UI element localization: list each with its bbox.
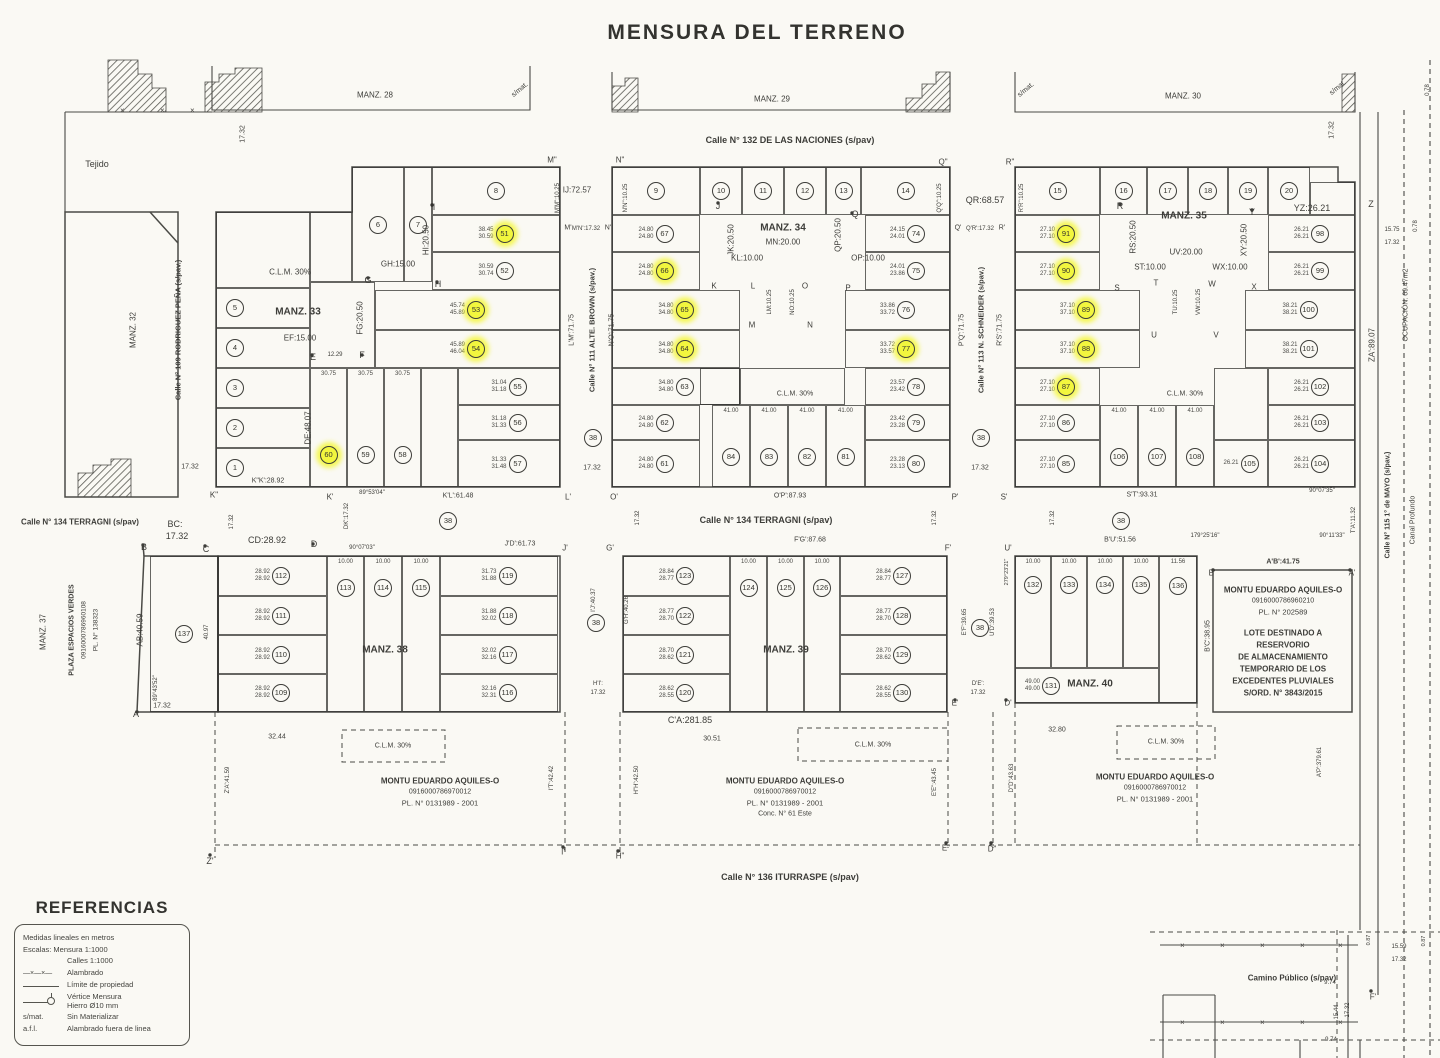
lot-number: 109	[272, 684, 290, 702]
lot-number: 12	[796, 182, 814, 200]
map-label: F'	[945, 544, 951, 553]
lot-number: 3	[226, 379, 244, 397]
lot-number-highlighted: 64	[676, 340, 694, 358]
lot-number: 125	[777, 579, 795, 597]
map-label: J	[716, 201, 721, 211]
lot-number: 119	[499, 567, 517, 585]
map-label: N'O':71.75	[609, 314, 616, 347]
map-label: P'Q':71.75	[959, 314, 966, 346]
map-label: 0916000786960108	[81, 601, 88, 659]
plan-linework: ××× ×× ××× ×× ×××	[0, 0, 1440, 1058]
svg-text:×: ×	[1220, 941, 1225, 950]
map-label: S	[1114, 284, 1119, 293]
map-label: D"	[988, 845, 997, 854]
lot-cell-132: 10.00132	[1015, 556, 1051, 668]
map-label: 32.44	[268, 734, 286, 741]
legend-text: Calles 1:1000	[67, 956, 113, 965]
map-label: WX:10.00	[1212, 263, 1247, 272]
map-label: 17.32	[153, 703, 171, 710]
lot-cell-86: 27.10 27.1086	[1015, 405, 1100, 440]
lot-dimensions: 10.00	[731, 559, 766, 566]
lot-cell-78: 23.57 23.4278	[865, 368, 950, 405]
lot-cell-99: 26.21 26.2199	[1268, 252, 1355, 290]
lot-number-highlighted: 54	[467, 340, 485, 358]
lot-number: 63	[676, 378, 694, 396]
map-label: 17.32	[1050, 510, 1056, 525]
map-label: MANZ. 40	[1067, 679, 1113, 690]
lot-dimensions: 26.21 26.21	[1294, 457, 1309, 471]
map-label: R	[1117, 201, 1124, 211]
right-edge-lines	[1360, 60, 1430, 1058]
map-label: RESERVORIO	[1256, 641, 1309, 650]
lot-number: 6	[369, 216, 387, 234]
lot-dimensions: 32.16 32.31	[481, 686, 496, 700]
lot-number: 62	[656, 414, 674, 432]
lot-number-highlighted: 51	[496, 225, 514, 243]
lot-cell-88: 37.10 37.1088	[1015, 330, 1140, 368]
lot-number: 61	[656, 455, 674, 473]
map-label: 0916000786970012	[1124, 785, 1186, 792]
lot-number-highlighted: 90	[1057, 262, 1075, 280]
map-label: S'T':93.31	[1126, 492, 1157, 499]
map-label: PL. N° 138323	[93, 609, 100, 651]
lot-cell-65: 34.80 34.8065	[612, 290, 740, 330]
lot-dimensions: 41.00	[1101, 408, 1137, 415]
lot-cell-121: 28.70 28.62121	[623, 635, 730, 674]
lot-cell-10: 10	[700, 167, 742, 215]
lot-dimensions: 34.80 34.80	[658, 303, 673, 317]
lot-dimensions: 24.80 24.80	[638, 457, 653, 471]
map-label: N'N":10.25	[623, 184, 629, 213]
lot-number: 108	[1186, 448, 1204, 466]
map-label: TEMPORARIO DE LOS	[1240, 665, 1326, 674]
lot-cell	[700, 368, 740, 405]
lot-number: 98	[1311, 225, 1329, 243]
map-label: NO:10.25	[790, 289, 796, 315]
lot-number: 104	[1311, 455, 1329, 473]
lot-dimensions: 38.45 30.59	[478, 227, 493, 241]
lot-cell-12: 12	[784, 167, 826, 215]
map-label: Calle N° 132 DE LAS NACIONES (s/pav)	[706, 135, 875, 145]
lot-number: 129	[893, 646, 911, 664]
map-label: C.L.M. 30%	[777, 391, 814, 398]
map-label: K'	[327, 493, 334, 502]
lot-cell-17: 17	[1147, 167, 1188, 215]
lot-number: 112	[272, 567, 290, 585]
lot-cell-126: 10.00126	[804, 556, 840, 712]
map-label: N	[807, 321, 813, 330]
lot-dimensions: 30.59 30.74	[478, 264, 493, 278]
map-label: 12.29	[327, 352, 342, 358]
lot-number: 20	[1280, 182, 1298, 200]
map-label: DK':17.32	[344, 503, 350, 529]
lot-dimensions: 41.00	[789, 408, 825, 415]
lot-number: 5	[226, 299, 244, 317]
lot-dimensions: 28.70 28.62	[876, 648, 891, 662]
lot-dimensions: 41.00	[751, 408, 787, 415]
map-label: PLAZA ESPACIOS VERDES	[69, 584, 76, 675]
map-label: ZA':89.07	[1368, 328, 1377, 362]
map-label: RS:20.50	[1129, 220, 1138, 253]
map-label: A'	[1349, 569, 1356, 578]
street-marker-circle: 38	[587, 614, 605, 632]
map-label: Calle N° 134 TERRAGNI (s/pav)	[21, 518, 139, 527]
map-label: Q	[851, 209, 858, 219]
lot-cell-135: 10.00135	[1123, 556, 1159, 668]
lot-cell-105: 26.21105	[1214, 440, 1268, 487]
lot-number: 114	[374, 579, 392, 597]
map-label: GH:15.00	[381, 260, 415, 269]
lot-dimensions: 10.00	[768, 559, 803, 566]
lot-number: 132	[1024, 576, 1042, 594]
lot-dimensions: 27.10 27.10	[1040, 457, 1055, 471]
legend: REFERENCIAS Medidas lineales en metrosEs…	[14, 898, 190, 1046]
map-label: FG:20.50	[356, 301, 365, 334]
lot-cell-51: 38.45 30.5951	[432, 215, 560, 252]
lot-dimensions: 10.00	[805, 559, 839, 566]
page-title: MENSURA DEL TERRENO	[607, 21, 906, 45]
lot-dimensions: 31.33 31.48	[491, 457, 506, 471]
map-label: N"	[616, 156, 625, 165]
lot-cell-77: 33.72 33.5777	[845, 330, 950, 368]
lot-cell-134: 10.00134	[1087, 556, 1123, 668]
legend-abbreviation: a.f.l.	[23, 1024, 67, 1033]
map-label: 17.32	[240, 125, 247, 143]
lot-number: 83	[760, 448, 778, 466]
map-label: F'G':87.68	[794, 537, 826, 544]
map-label: OCUPACIÓN: 69.47m2	[1403, 268, 1410, 341]
map-label: DE:48.07	[304, 411, 313, 444]
lot-cell-90: 27.10 27.1090	[1015, 252, 1100, 290]
lot-number: 136	[1169, 577, 1187, 595]
lot-dimensions: 28.62 28.55	[659, 686, 674, 700]
lot-number: 78	[907, 378, 925, 396]
map-label: EF:15.00	[284, 334, 316, 343]
lot-number: 10	[712, 182, 730, 200]
lot-number: 113	[337, 579, 355, 597]
lot-number: 107	[1148, 448, 1166, 466]
legend-text: Vértice Mensura Hierro Ø10 mm	[67, 992, 122, 1010]
legend-row: Escalas: Mensura 1:1000	[23, 945, 183, 954]
lot-dimensions: 49.00 49.00	[1025, 679, 1040, 693]
lot-cell-79: 23.42 23.2879	[865, 405, 950, 440]
lot-number: 55	[509, 378, 527, 396]
lot-dimensions: 26.21 26.21	[1294, 416, 1309, 430]
lot-dimensions: 23.28 23.13	[890, 457, 905, 471]
lot-cell-54: 45.89 46.0454	[375, 330, 560, 368]
map-label: Calle N° 113 N. SCHNEIDER (s/pav.)	[977, 267, 986, 393]
lot-number: 4	[226, 339, 244, 357]
map-label: 90°07'35"	[1309, 488, 1335, 494]
map-label: EXCEDENTES PLUVIALES	[1232, 677, 1333, 686]
map-label: IJ:72.57	[563, 186, 591, 195]
lot-number: 19	[1239, 182, 1257, 200]
lot-dimensions: 27.10 27.10	[1040, 380, 1055, 394]
map-label: 279°23'21"	[1004, 559, 1010, 586]
lot-cell	[310, 212, 352, 282]
map-label: N'	[605, 225, 611, 232]
lot-cell-102: 26.21 26.21102	[1268, 368, 1355, 405]
lot-cell-109: 28.92 28.92109	[218, 674, 327, 712]
lot-number-highlighted: 77	[897, 340, 915, 358]
map-label: D	[311, 539, 318, 549]
lot-cell-122: 28.77 28.70122	[623, 596, 730, 635]
lot-number: 101	[1300, 340, 1318, 358]
street-marker-circle: 38	[972, 429, 990, 447]
lot-number: 57	[509, 455, 527, 473]
map-label: Calle N° 136 ITURRASPE (s/pav)	[721, 872, 859, 882]
lot-dimensions: 32.02 32.16	[481, 648, 496, 662]
lot-number: 121	[676, 646, 694, 664]
lot-number: 52	[496, 262, 514, 280]
map-label: A	[133, 709, 139, 719]
map-label: 0916000786960210	[1252, 598, 1314, 605]
lot-number: 117	[499, 646, 517, 664]
lot-dimensions: 24.80 24.80	[638, 264, 653, 278]
map-label: R'S':71.75	[997, 314, 1004, 346]
legend-row: Vértice Mensura Hierro Ø10 mm	[23, 992, 183, 1010]
map-label: U'	[1004, 544, 1011, 553]
lot-dimensions: 41.00	[1177, 408, 1213, 415]
street-marker-circle: 38	[1112, 512, 1130, 530]
lot-cell	[216, 212, 310, 288]
lot-number: 130	[893, 684, 911, 702]
lot-dimensions: 28.92 28.92	[255, 609, 270, 623]
lot-dimensions: 37.10 37.10	[1060, 303, 1075, 317]
map-label: 40.97	[204, 624, 210, 639]
legend-row: Límite de propiedad	[23, 980, 183, 989]
lot-dimensions: 28.92 28.92	[255, 569, 270, 583]
map-label: C.L.M. 30%	[269, 268, 311, 277]
map-label: D'	[1004, 699, 1011, 708]
map-label: CD:28.92	[248, 535, 286, 545]
lot-dimensions: 37.10 37.10	[1060, 342, 1075, 356]
map-label: B	[141, 542, 147, 552]
map-label: MANZ. 33	[275, 307, 321, 318]
lot-dimensions: 27.10 27.10	[1040, 264, 1055, 278]
lot-cell-130: 28.62 28.55130	[840, 674, 947, 712]
map-label: G	[364, 275, 371, 285]
map-label: 17.32	[590, 690, 605, 696]
lot-cell	[1214, 368, 1268, 440]
lot-number-highlighted: 53	[467, 301, 485, 319]
map-label: HI:20.50	[422, 225, 431, 255]
map-label: 89°43'52"	[153, 675, 159, 701]
map-label: QR:68.57	[966, 195, 1005, 205]
lot-dimensions: 31.88 32.02	[481, 609, 496, 623]
lot-cell-104: 26.21 26.21104	[1268, 440, 1355, 487]
lot-number: 127	[893, 567, 911, 585]
map-label: MONTU EDUARDO AQUILES-O	[1096, 773, 1214, 782]
map-label: J'D':61.73	[505, 541, 536, 548]
lot-number: 81	[837, 448, 855, 466]
lot-dimensions: 28.77 28.70	[876, 609, 891, 623]
map-label: I	[433, 202, 436, 212]
legend-row: —×—×—Alambrado	[23, 968, 183, 978]
survey-sheet: MENSURA DEL TERRENO	[0, 0, 1440, 1058]
map-label: H	[435, 279, 442, 289]
lot-cell-128: 28.77 28.70128	[840, 596, 947, 635]
map-label: T	[1154, 279, 1159, 288]
lot-number: 76	[897, 301, 915, 319]
legend-row: Medidas lineales en metros	[23, 933, 183, 942]
lot-dimensions: 31.73 31.88	[481, 569, 496, 583]
lot-cell-59: 30.7559	[347, 368, 384, 487]
lot-dimensions: 41.00	[827, 408, 864, 415]
map-label: K'L':61.48	[443, 493, 474, 500]
map-label: YZ:26.21	[1294, 203, 1331, 213]
map-label: UV:20.00	[1169, 248, 1202, 257]
lot-number: 9	[647, 182, 665, 200]
map-label: C.L.M. 30%	[1148, 739, 1185, 746]
map-label: E	[310, 352, 316, 362]
lot-number: 99	[1311, 262, 1329, 280]
lot-cell-98: 26.21 26.2198	[1268, 215, 1355, 252]
lot-dimensions: 26.21 26.21	[1294, 380, 1309, 394]
lot-dimensions: 26.21 26.21	[1294, 264, 1309, 278]
lot-number: 105	[1241, 455, 1259, 473]
map-label: 17.32	[932, 510, 938, 525]
lot-cell-8: 8	[432, 167, 560, 215]
lot-cell-11: 11	[742, 167, 784, 215]
lot-number: 102	[1311, 378, 1329, 396]
lot-cell-108: 41.00108	[1176, 405, 1214, 487]
lot-cell-100: 38.21 38.21100	[1245, 290, 1355, 330]
lot-dimensions: 24.80 24.80	[638, 227, 653, 241]
lot-cell-111: 28.92 28.92111	[218, 596, 327, 635]
map-label: P	[845, 284, 850, 293]
map-label: O'P':87.93	[774, 493, 806, 500]
map-label: 17.32	[1329, 121, 1336, 139]
lot-cell-127: 28.84 28.77127	[840, 556, 947, 596]
map-label: 17.32	[181, 464, 199, 471]
lot-number: 74	[907, 225, 925, 243]
lot-number-highlighted: 60	[320, 446, 338, 464]
lot-number: 120	[676, 684, 694, 702]
lot-number: 82	[798, 448, 816, 466]
lot-cell-55: 31.04 31.1855	[458, 368, 560, 405]
street-marker-circle: 38	[584, 429, 602, 447]
lot-dimensions: 28.62 28.55	[876, 686, 891, 700]
lot-dimensions: 28.92 28.92	[255, 686, 270, 700]
lot-cell-136: 11.56136	[1159, 556, 1197, 703]
map-label: Camino Público (s/pav)	[1248, 974, 1336, 983]
map-label: M'	[564, 225, 571, 232]
lot-cell-110: 28.92 28.92110	[218, 635, 327, 674]
lot-cell-129: 28.70 28.62129	[840, 635, 947, 674]
lot-number: 16	[1115, 182, 1133, 200]
lot-dimensions: 28.77 28.70	[659, 609, 674, 623]
map-label: MANZ. 38	[362, 645, 408, 656]
street-marker-circle: 38	[439, 512, 457, 530]
lot-dimensions: 41.00	[1139, 408, 1175, 415]
lot-number: 135	[1132, 576, 1150, 594]
map-label: U'D':39.53	[990, 608, 996, 636]
lot-cell-58: 30.7558	[384, 368, 421, 487]
map-label: ST:10.00	[1134, 263, 1166, 272]
lot-number: 14	[897, 182, 915, 200]
map-label: Q'R':17.32	[966, 226, 994, 232]
map-label: 90°11'33"	[1319, 533, 1344, 539]
map-label: TU:10.25	[1173, 290, 1179, 315]
lot-cell-84: 41.0084	[712, 405, 750, 487]
lot-dimensions: 23.57 23.42	[890, 380, 905, 394]
map-label: E"	[942, 844, 950, 853]
map-label: H"	[616, 852, 625, 861]
map-label: H'I':	[593, 681, 603, 687]
lot-number: 75	[907, 262, 925, 280]
lot-cell-124: 10.00124	[730, 556, 767, 712]
lot-dimensions: 30.75	[348, 371, 383, 378]
map-label: MN:20.00	[766, 238, 801, 247]
map-label: J'	[562, 544, 568, 553]
map-label: A'P':379.61	[1317, 747, 1323, 777]
lot-number: 116	[499, 684, 517, 702]
map-label: L'M':71.75	[569, 314, 576, 346]
map-label: XY:20.50	[1240, 224, 1249, 256]
map-label: Z'	[206, 856, 213, 866]
lot-number: 85	[1057, 455, 1075, 473]
map-label: K"K':28.92	[252, 478, 285, 485]
map-label: 89°53'04"	[359, 490, 385, 496]
map-label: T'A':11.32	[1351, 507, 1357, 533]
lot-dimensions: 26.21 26.21	[1294, 227, 1309, 241]
map-label: M	[749, 321, 756, 330]
lot-number: 15	[1049, 182, 1067, 200]
svg-text:×: ×	[1300, 1018, 1305, 1027]
map-label: B'	[1209, 569, 1216, 578]
map-label: B'C':38.95	[1205, 620, 1212, 652]
lot-number: 103	[1311, 414, 1329, 432]
map-label: 17.32	[1391, 957, 1406, 963]
lot-dimensions: 38.21 38.21	[1282, 303, 1297, 317]
lot-number: 123	[676, 567, 694, 585]
legend-text: Sin Materializar	[67, 1012, 119, 1021]
map-label: MONTU EDUARDO AQUILES-O	[1224, 586, 1342, 595]
map-label: V	[1213, 331, 1218, 340]
map-label: MANZ. 37	[39, 614, 48, 650]
lot-dimensions: 45.74 45.89	[450, 303, 465, 317]
map-label: 90°07'03"	[349, 545, 375, 551]
map-label: R"	[1006, 158, 1015, 167]
map-label: MANZ. 28	[357, 91, 393, 100]
map-label: MONTU EDUARDO AQUILES-O	[381, 777, 499, 786]
lot-cell	[740, 368, 845, 405]
map-label: R'	[999, 225, 1005, 232]
legend-text: Medidas lineales en metros	[23, 933, 114, 942]
lot-number: 134	[1096, 576, 1114, 594]
lot-number: 18	[1199, 182, 1217, 200]
map-label: 0.87	[1421, 936, 1427, 947]
map-label: Z	[1368, 199, 1374, 209]
map-label: MANZ. 35	[1161, 211, 1207, 222]
lot-dimensions: 27.10 27.10	[1040, 227, 1055, 241]
map-label: LM:10.25	[767, 289, 773, 314]
map-label: Calle N° 111 ALTE. BROWN (s/pav.)	[588, 268, 597, 392]
lot-number-highlighted: 89	[1077, 301, 1095, 319]
map-label: Q"	[938, 158, 947, 167]
lot-number: 67	[656, 225, 674, 243]
lot-dimensions: 34.80 34.80	[658, 342, 673, 356]
lot-cell-112: 28.92 28.92112	[218, 556, 327, 596]
map-label: B'U':51.56	[1104, 537, 1136, 544]
svg-text:×: ×	[1338, 941, 1343, 950]
map-label: P'	[952, 493, 959, 502]
lot-cell-117: 32.02 32.16117	[440, 635, 558, 674]
lot-number: 126	[813, 579, 831, 597]
map-label: 17.32	[1384, 240, 1399, 246]
lot-cell-119: 31.73 31.88119	[440, 556, 558, 596]
